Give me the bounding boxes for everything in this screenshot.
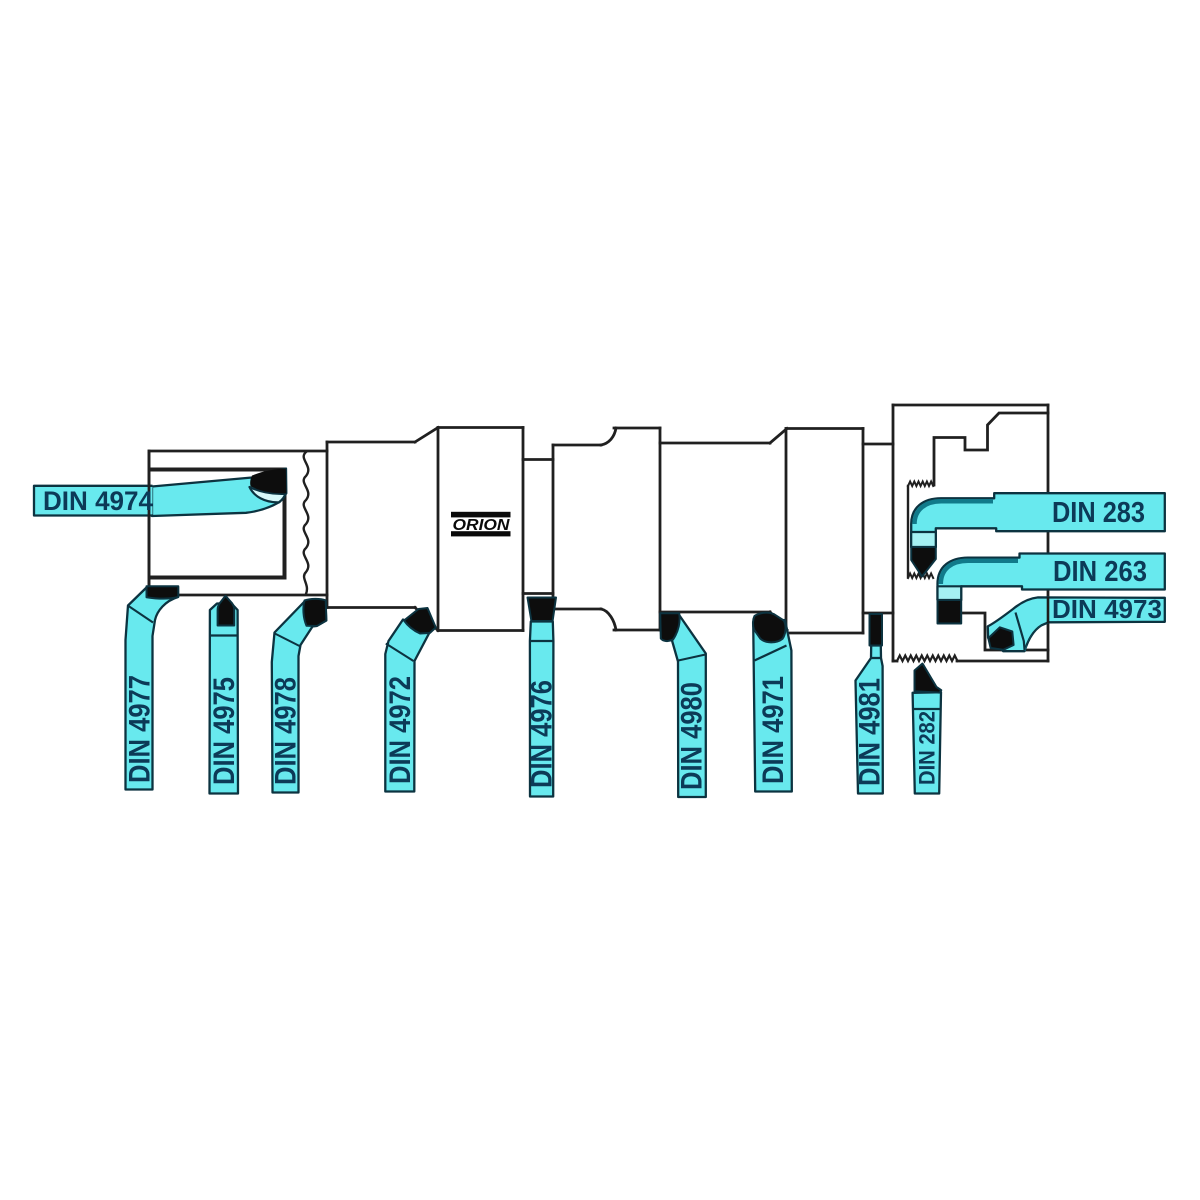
svg-text:DIN 4980: DIN 4980 [676,682,709,790]
svg-text:DIN 4981: DIN 4981 [854,678,887,786]
svg-text:DIN 282: DIN 282 [915,711,940,785]
svg-text:DIN 283: DIN 283 [1052,497,1145,529]
svg-text:DIN 263: DIN 263 [1053,556,1147,588]
svg-text:DIN 4974: DIN 4974 [43,486,153,516]
svg-text:DIN 4975: DIN 4975 [208,677,241,785]
svg-text:DIN 4971: DIN 4971 [757,676,790,784]
svg-text:DIN 4972: DIN 4972 [384,676,417,784]
svg-text:DIN 4973: DIN 4973 [1052,594,1162,624]
svg-text:DIN 4977: DIN 4977 [124,675,157,783]
svg-text:DIN 4976: DIN 4976 [526,680,559,788]
svg-text:DIN 4978: DIN 4978 [270,677,303,785]
